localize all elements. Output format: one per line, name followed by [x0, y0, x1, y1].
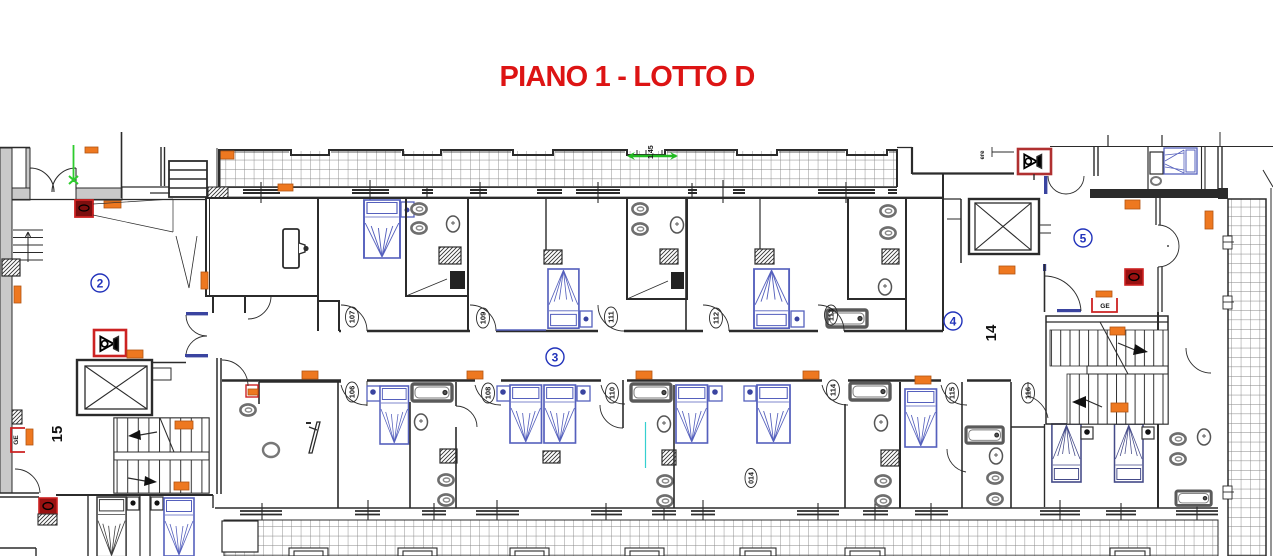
svg-text:116: 116	[1024, 387, 1033, 399]
svg-text:115: 115	[948, 387, 957, 399]
svg-text:5: 5	[1080, 232, 1087, 246]
svg-text:GE: GE	[13, 435, 20, 445]
svg-text:112: 112	[712, 312, 721, 324]
svg-text:108: 108	[484, 387, 493, 400]
svg-text:GE: GE	[1100, 303, 1110, 310]
svg-text:1,45: 1,45	[648, 145, 655, 159]
svg-text:15: 15	[49, 426, 66, 443]
svg-text:113: 113	[827, 309, 836, 321]
svg-text:106: 106	[348, 386, 357, 399]
svg-text:ere: ere	[980, 150, 986, 160]
svg-text:014: 014	[749, 472, 756, 484]
svg-text:110: 110	[608, 387, 617, 399]
svg-text:109: 109	[479, 312, 488, 325]
svg-text:3: 3	[552, 351, 559, 365]
svg-text:4: 4	[950, 315, 957, 329]
svg-text:PIANO 1 - LOTTO D: PIANO 1 - LOTTO D	[500, 61, 755, 93]
svg-text:111: 111	[607, 311, 616, 323]
svg-text:114: 114	[829, 383, 838, 396]
svg-text:2: 2	[97, 277, 104, 291]
svg-text:14: 14	[983, 324, 1000, 341]
svg-text:107: 107	[348, 311, 357, 324]
